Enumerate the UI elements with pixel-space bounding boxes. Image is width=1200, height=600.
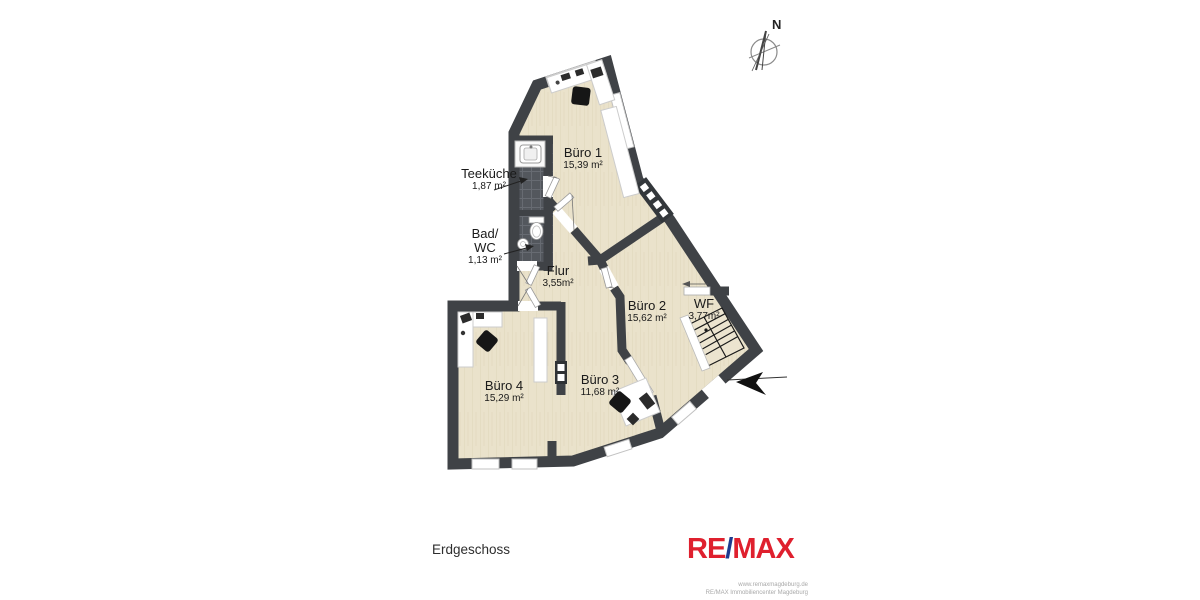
room-label-wf: WF 3,77m² <box>674 297 734 323</box>
flur-name: Flur <box>528 264 588 278</box>
buero1-area: 15,39 m² <box>545 161 621 172</box>
buero4-whiteboard-icon <box>534 318 547 382</box>
compass-icon <box>749 31 780 71</box>
buero1-name: Büro 1 <box>545 146 621 160</box>
remax-logo: RE/MAX <box>687 533 794 566</box>
north-label: N <box>772 17 781 32</box>
floorplan-page: Büro 1 15,39 m² Teeküche 1,87 m² Bad/ WC… <box>0 0 1200 600</box>
entry-arrow-icon <box>727 372 787 395</box>
room-label-buero1: Büro 1 15,39 m² <box>545 146 621 172</box>
wf-area: 3,77m² <box>674 312 734 323</box>
floor-plan <box>0 0 1200 600</box>
badwc-name-1: Bad/ <box>462 227 508 241</box>
teekueche-name: Teeküche <box>459 167 519 181</box>
window-bottom-1 <box>472 459 499 469</box>
buero3-area: 11,68 m² <box>560 388 640 399</box>
window-bottom-2 <box>512 459 537 469</box>
room-label-buero4: Büro 4 15,29 m² <box>464 379 544 405</box>
flur-area: 3,55m² <box>528 279 588 290</box>
badwc-name-2: WC <box>462 241 508 255</box>
teekueche-area: 1,87 m² <box>459 182 519 193</box>
footer-credits: www.remaxmagdeburg.de RE/MAX Immobilienc… <box>600 581 808 597</box>
wf-name: WF <box>674 297 734 311</box>
logo-re: RE <box>687 533 725 565</box>
room-label-buero3: Büro 3 11,68 m² <box>560 373 640 399</box>
room-label-teekueche: Teeküche 1,87 m² <box>459 167 519 193</box>
toilet-icon <box>529 217 544 240</box>
badwc-area: 1,13 m² <box>462 256 508 267</box>
floor-label: Erdgeschoss <box>432 542 510 557</box>
buero4-name: Büro 4 <box>464 379 544 393</box>
buero3-name: Büro 3 <box>560 373 640 387</box>
footer-company: RE/MAX Immobiliencenter Magdeburg <box>600 589 808 597</box>
room-label-flur: Flur 3,55m² <box>528 264 588 290</box>
room-label-badwc: Bad/ WC 1,13 m² <box>462 227 508 267</box>
logo-max: MAX <box>732 533 793 565</box>
kitchen-sink-icon <box>515 141 545 167</box>
footer-website: www.remaxmagdeburg.de <box>600 581 808 589</box>
buero4-area: 15,29 m² <box>464 394 544 405</box>
